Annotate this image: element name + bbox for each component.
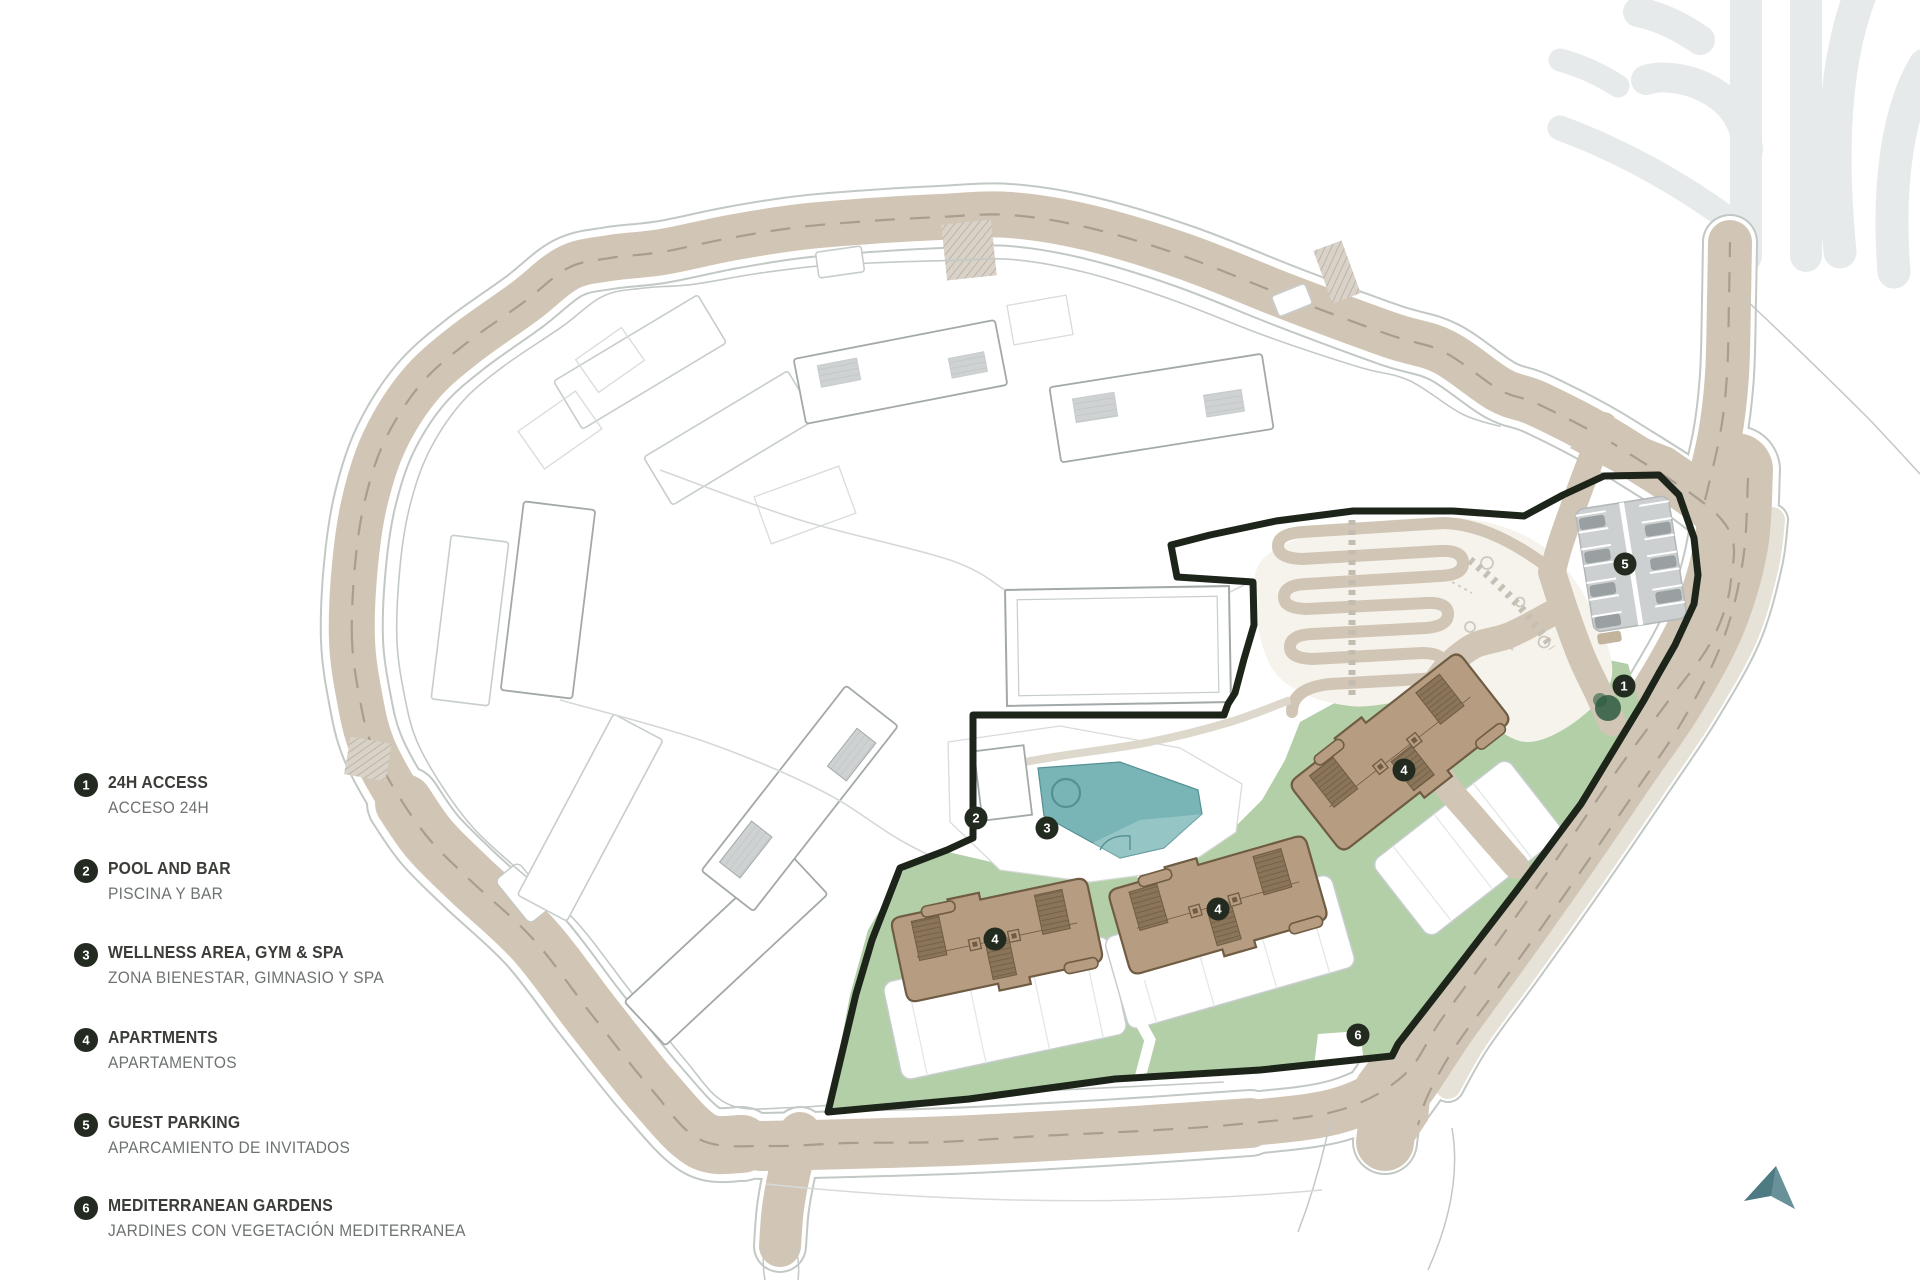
svg-text:1: 1 — [82, 778, 89, 793]
svg-text:4: 4 — [991, 932, 999, 947]
svg-text:6: 6 — [82, 1201, 89, 1216]
svg-text:POOL AND BAR: POOL AND BAR — [108, 858, 231, 878]
svg-text:24H ACCESS: 24H ACCESS — [108, 772, 208, 792]
svg-text:ZONA BIENESTAR, GIMNASIO Y SPA: ZONA BIENESTAR, GIMNASIO Y SPA — [108, 970, 384, 988]
svg-text:GUEST PARKING: GUEST PARKING — [108, 1112, 240, 1132]
svg-text:5: 5 — [82, 1118, 89, 1133]
svg-text:ACCESO 24H: ACCESO 24H — [108, 800, 209, 818]
svg-text:JARDINES CON VEGETACIÓN MEDITE: JARDINES CON VEGETACIÓN MEDITERRANEA — [108, 1221, 466, 1241]
svg-text:1: 1 — [1620, 679, 1627, 694]
svg-text:4: 4 — [1214, 902, 1222, 917]
svg-text:4: 4 — [82, 1033, 90, 1048]
svg-text:APARTMENTS: APARTMENTS — [108, 1027, 218, 1047]
svg-text:3: 3 — [1043, 821, 1050, 836]
svg-text:6: 6 — [1354, 1028, 1361, 1043]
svg-text:MEDITERRANEAN GARDENS: MEDITERRANEAN GARDENS — [108, 1195, 333, 1215]
svg-text:APARCAMIENTO DE INVITADOS: APARCAMIENTO DE INVITADOS — [108, 1140, 350, 1158]
svg-text:PISCINA Y BAR: PISCINA Y BAR — [108, 886, 223, 904]
svg-text:WELLNESS AREA, GYM & SPA: WELLNESS AREA, GYM & SPA — [108, 942, 344, 962]
svg-text:2: 2 — [972, 811, 979, 826]
svg-text:3: 3 — [82, 948, 89, 963]
svg-text:4: 4 — [1400, 763, 1408, 778]
svg-text:2: 2 — [82, 864, 89, 879]
svg-text:5: 5 — [1621, 557, 1628, 572]
svg-text:APARTAMENTOS: APARTAMENTOS — [108, 1055, 237, 1073]
